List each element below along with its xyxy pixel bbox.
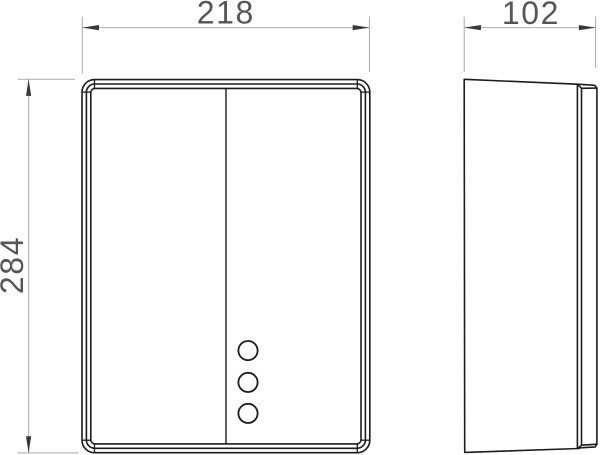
svg-text:284: 284 (0, 236, 30, 294)
svg-text:218: 218 (197, 0, 255, 31)
svg-text:102: 102 (502, 0, 560, 31)
